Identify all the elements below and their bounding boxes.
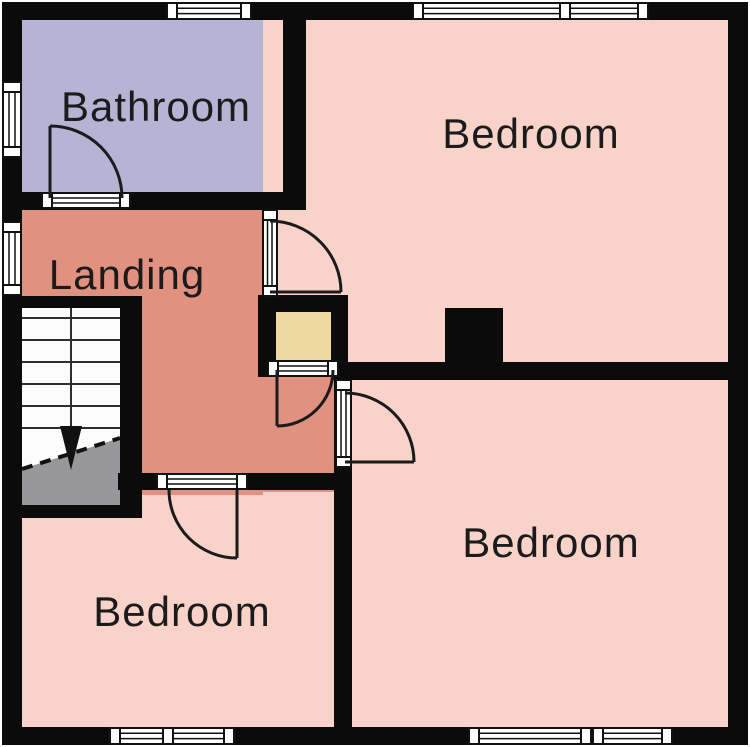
opening-bathroom-door [42,193,130,208]
bedroom-se-label: Bedroom [462,519,639,566]
window-bedroom-se-bottom [469,728,672,744]
wall-bathroom-right [283,2,306,210]
window-bathroom-top [167,3,251,19]
landing-label: Landing [49,251,205,298]
floor-plan-page: Bathroom Landing Bedroom Bedroom Bedroom [0,0,750,747]
wall-outer-right [728,2,748,745]
floor-plan: Bathroom Landing Bedroom Bedroom Bedroom [0,0,750,747]
closet-interior [276,312,331,362]
stair-wall-bottom [20,505,142,518]
bedroom-sw-label: Bedroom [93,588,270,635]
window-bedroom-ne-top [413,3,648,19]
bedroom-ne-label: Bedroom [442,110,619,157]
opening-bedroom-ne-door [263,210,277,296]
opening-bedroom-sw-door [157,474,247,489]
window-bedroom-sw-bottom [110,728,234,744]
wall-bedrooms-divider-horizontal [331,362,730,380]
window-landing-left [3,222,21,295]
chimney-breast [445,308,503,380]
window-bathroom-left [3,82,21,157]
bathroom-label: Bathroom [61,83,251,130]
